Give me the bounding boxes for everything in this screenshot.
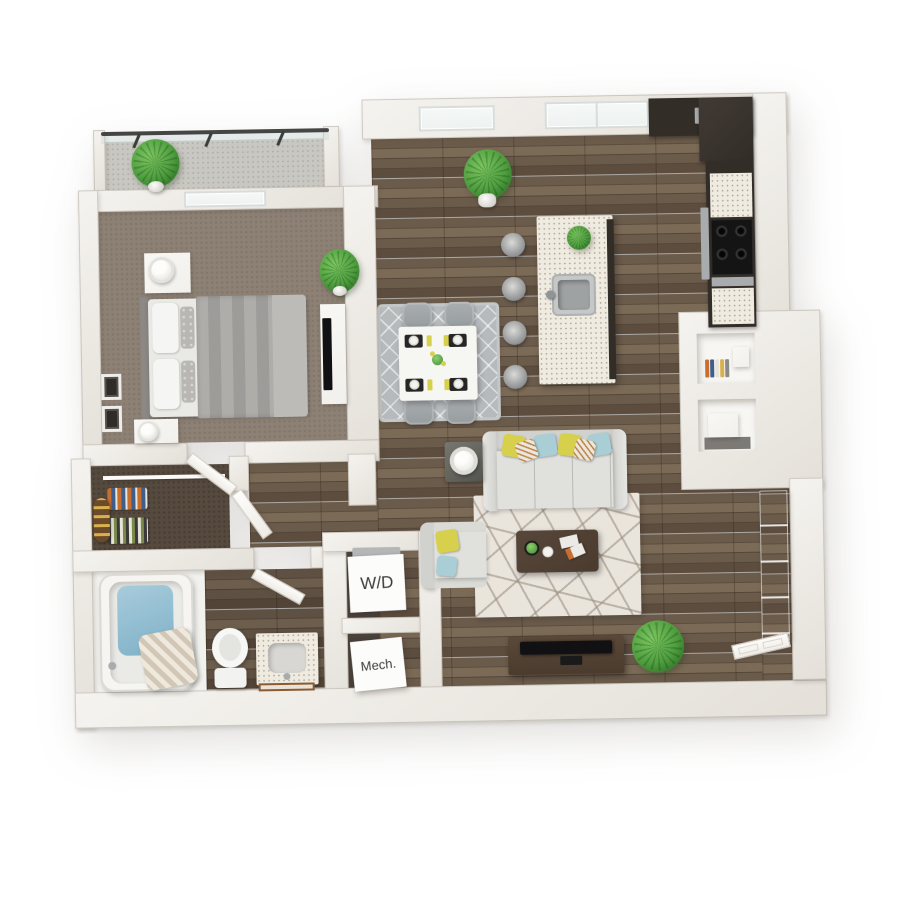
napkin [444,335,449,346]
sofa-arm [482,431,497,511]
plate [409,336,419,346]
rolled-rug [93,498,110,542]
niche-box [733,347,749,367]
armchair [420,521,487,588]
niche-shadow [704,437,750,450]
dining-chair [404,398,434,425]
bathtub [99,573,195,693]
napkin [427,335,432,346]
throw-pillow [435,529,460,554]
wall [789,478,827,681]
dining-chair [444,302,474,329]
wall-art [102,406,122,432]
sofa [482,429,627,512]
living-window [419,105,495,131]
wall [343,185,380,462]
island-sink [552,273,597,316]
napkin [427,379,432,390]
counter-trim [712,277,754,287]
island-faucet [546,290,555,299]
floor-plan-canvas: W/D Mech. [0,0,900,900]
mechanical-unit: Mech. [350,637,407,692]
oven-front [700,207,709,279]
centerpiece-flower [441,361,446,366]
toilet-tank [214,668,246,689]
hanging-clothes [108,517,148,544]
door-panel [762,638,783,649]
bed [140,294,314,419]
bed-pillow [153,359,180,409]
washer-dryer-label: W/D [360,572,394,594]
wall-art [101,374,121,400]
dining-chair [402,302,432,329]
sink-basin [558,280,591,311]
tv [520,640,612,655]
bedroom-window [184,190,266,207]
bath-mat [259,682,315,691]
accent-pillow [180,306,195,348]
vanity [256,632,319,685]
bed-throw [272,295,308,418]
mechanical-label: Mech. [360,655,397,674]
wall [348,453,377,505]
media-box [560,656,582,665]
plate [453,379,463,389]
centerpiece-flower [430,351,435,356]
vanity-sink [268,643,307,674]
dining-chair [446,398,476,425]
armchair-arm [435,577,487,588]
washer-dryer-unit: W/D [347,554,406,613]
display-niche [698,399,757,452]
book [725,359,729,377]
armchair-back [420,522,435,588]
vanity-faucet [283,673,290,680]
apartment-floor-plan: W/D Mech. [46,85,857,749]
kitchen-floor-plant-pot [478,193,496,207]
niche-box [708,413,738,438]
counter-quartz [712,288,755,325]
counter-quartz [710,173,753,218]
book [720,359,724,377]
display-niche [697,333,756,384]
sofa-seat [497,449,614,509]
book [715,359,719,377]
sofa-arm [612,429,627,509]
shower-curtain [137,627,199,692]
wall [82,443,187,467]
wall [72,547,254,572]
door-panel [738,643,759,654]
book [705,360,709,378]
book [710,359,714,377]
refrigerator [698,97,753,162]
plate [453,335,463,345]
hanging-clothes [107,487,147,510]
toilet [210,628,251,691]
coffee-table-flowers [543,547,552,556]
wall [752,92,790,335]
bedroom-tv [322,318,332,390]
throw-pillow [436,555,458,577]
accent-pillow [181,360,196,402]
napkin [444,379,449,390]
bed-pillow [152,303,179,353]
glass-shelf-unit [759,490,790,640]
